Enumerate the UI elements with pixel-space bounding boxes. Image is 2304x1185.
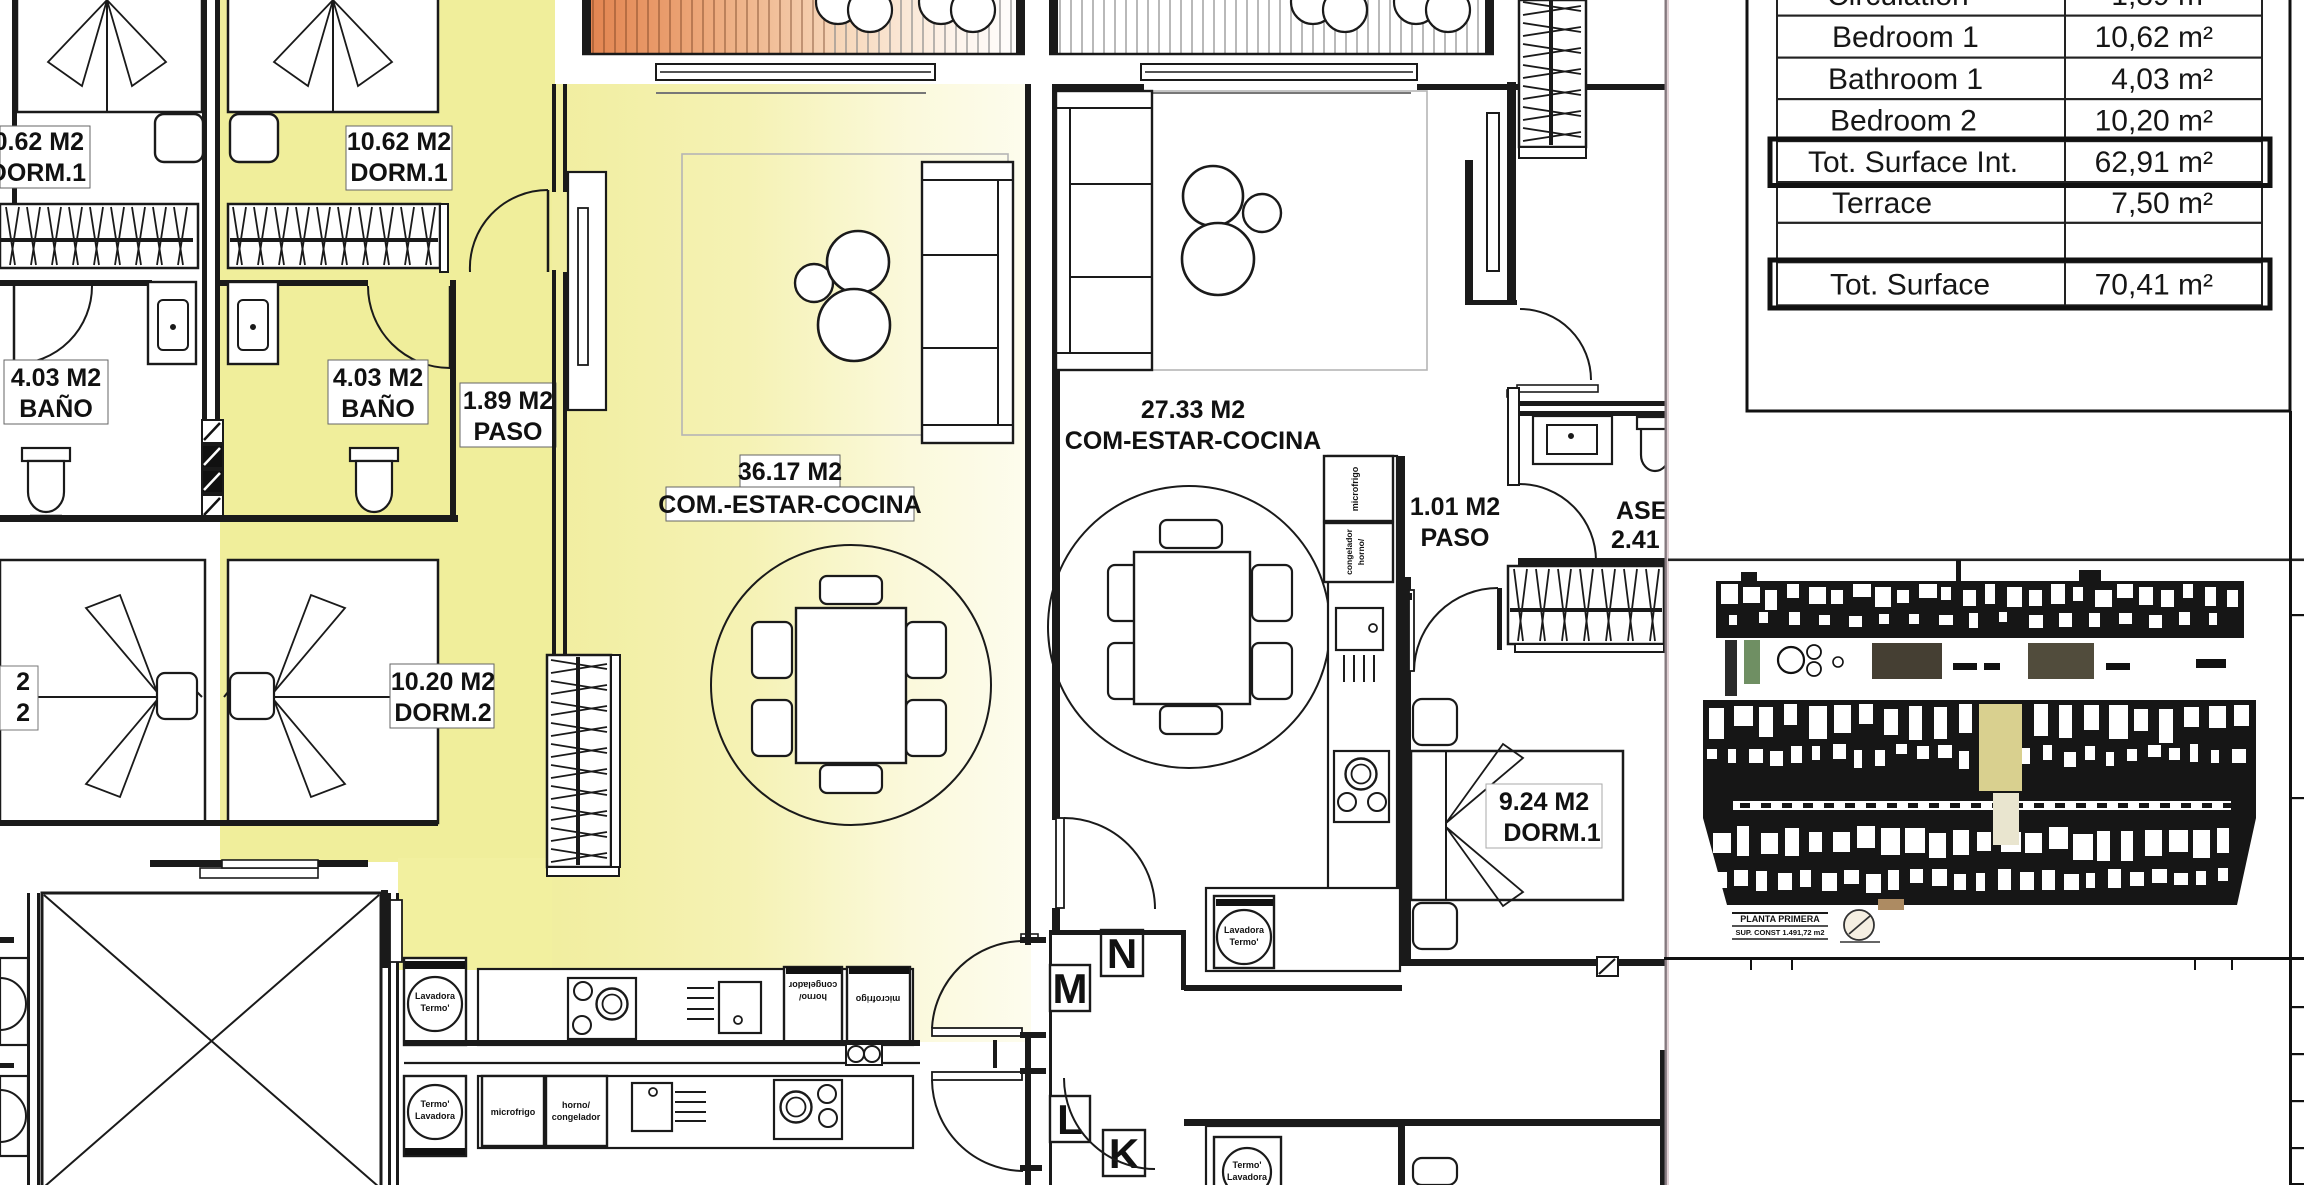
svg-text:Lavadora: Lavadora xyxy=(1227,1172,1268,1182)
svg-text:congelador: congelador xyxy=(788,980,837,990)
svg-text:congelador: congelador xyxy=(552,1112,601,1122)
svg-text:BAÑO: BAÑO xyxy=(341,393,415,423)
svg-text:10,20 m²: 10,20 m² xyxy=(2095,105,2213,138)
svg-text:36.17 M2: 36.17 M2 xyxy=(738,458,842,486)
svg-text:Bedroom 1: Bedroom 1 xyxy=(1832,21,1979,54)
svg-text:Termo': Termo' xyxy=(1230,937,1259,947)
svg-text:Tot. Surface Int.: Tot. Surface Int. xyxy=(1808,146,2018,179)
svg-text:PLANTA PRIMERA: PLANTA PRIMERA xyxy=(1740,914,1820,924)
svg-text:4.03 M2: 4.03 M2 xyxy=(333,364,423,392)
svg-text:4,03 m²: 4,03 m² xyxy=(2111,63,2213,96)
svg-text:microfrigo: microfrigo xyxy=(855,994,900,1004)
svg-text:M: M xyxy=(1053,965,1088,1012)
svg-text:horno/: horno/ xyxy=(1356,538,1366,565)
svg-text:COM-ESTAR-COCINA: COM-ESTAR-COCINA xyxy=(1065,427,1321,455)
svg-text:10.20 M2: 10.20 M2 xyxy=(391,668,495,696)
svg-text:Bedroom 2: Bedroom 2 xyxy=(1830,105,1977,138)
svg-text:1.01 M2: 1.01 M2 xyxy=(1410,493,1500,521)
svg-text:PASO: PASO xyxy=(474,418,543,446)
svg-text:Termo': Termo' xyxy=(421,1003,450,1013)
svg-text:62,91 m²: 62,91 m² xyxy=(2095,146,2213,179)
svg-text:L: L xyxy=(1057,1096,1083,1143)
svg-text:microfrigo: microfrigo xyxy=(1350,466,1360,511)
svg-text:N: N xyxy=(1107,930,1137,977)
svg-text:2: 2 xyxy=(16,699,30,727)
svg-text:COM.-ESTAR-COCINA: COM.-ESTAR-COCINA xyxy=(658,491,921,519)
svg-text:1.89 M2: 1.89 M2 xyxy=(463,387,553,415)
svg-text:DORM.1: DORM.1 xyxy=(350,159,447,187)
svg-text:0.62 M2: 0.62 M2 xyxy=(0,128,84,156)
svg-text:DORM.1: DORM.1 xyxy=(1503,819,1600,847)
svg-text:K: K xyxy=(1109,1130,1139,1177)
svg-text:27.33 M2: 27.33 M2 xyxy=(1141,396,1245,424)
svg-text:1,89 m²: 1,89 m² xyxy=(2111,0,2213,12)
svg-text:10,62 m²: 10,62 m² xyxy=(2095,21,2213,54)
svg-text:SUP. CONST 1.491,72 m2: SUP. CONST 1.491,72 m2 xyxy=(1735,928,1824,937)
svg-text:Circulation: Circulation xyxy=(1827,0,1969,12)
svg-text:BAÑO: BAÑO xyxy=(19,393,93,423)
svg-text:Lavadora: Lavadora xyxy=(1224,925,1265,935)
svg-text:congelador: congelador xyxy=(1344,528,1354,575)
svg-text:Lavadora: Lavadora xyxy=(415,1111,456,1121)
svg-text:Bathroom 1: Bathroom 1 xyxy=(1828,63,1983,96)
svg-text:9.24 M2: 9.24 M2 xyxy=(1499,788,1589,816)
svg-text:DORM.2: DORM.2 xyxy=(394,699,491,727)
svg-text:Termo': Termo' xyxy=(421,1099,450,1109)
svg-text:PASO: PASO xyxy=(1421,524,1490,552)
svg-text:Lavadora: Lavadora xyxy=(415,991,456,1001)
svg-text:microfrigo: microfrigo xyxy=(491,1107,536,1117)
svg-text:DORM.1: DORM.1 xyxy=(0,159,86,187)
svg-text:Terrace: Terrace xyxy=(1832,187,1932,220)
svg-text:7,50 m²: 7,50 m² xyxy=(2111,187,2213,220)
svg-text:70,41 m²: 70,41 m² xyxy=(2095,268,2213,301)
svg-text:Termo': Termo' xyxy=(1233,1160,1262,1170)
svg-text:4.03 M2: 4.03 M2 xyxy=(11,364,101,392)
svg-text:2: 2 xyxy=(16,668,30,696)
svg-text:Tot. Surface: Tot. Surface xyxy=(1830,268,1990,301)
svg-text:horno/: horno/ xyxy=(799,992,827,1002)
svg-text:horno/: horno/ xyxy=(562,1100,590,1110)
svg-text:10.62 M2: 10.62 M2 xyxy=(347,128,451,156)
